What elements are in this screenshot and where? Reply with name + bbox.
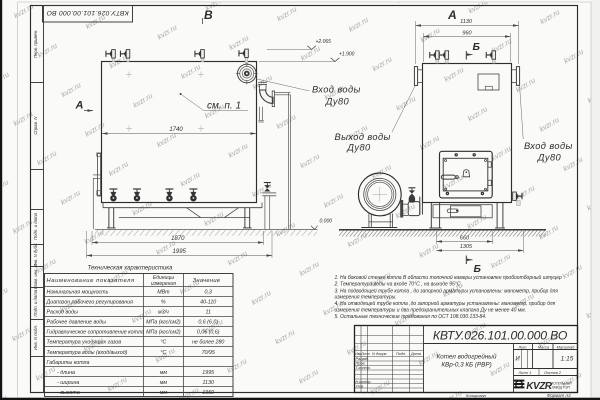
svg-text:Масштаб: Масштаб bbox=[557, 345, 576, 349]
svg-text:3. На подводящей трубе котла: 3. На подводящей трубе котла , до запорн… bbox=[335, 287, 559, 294]
svg-text:не более 280: не более 280 bbox=[192, 340, 224, 346]
svg-text:Формат А3: Формат А3 bbox=[547, 393, 571, 398]
svg-text:1130: 1130 bbox=[203, 380, 214, 386]
svg-text:0.000: 0.000 bbox=[320, 218, 333, 224]
svg-text:Перв. примен.: Перв. примен. bbox=[33, 30, 38, 59]
svg-text:0,06 (0,6): 0,06 (0,6) bbox=[197, 330, 220, 336]
svg-text:Расход воды: Расход воды bbox=[47, 310, 78, 316]
svg-text:- длина: - длина bbox=[57, 370, 75, 376]
svg-text:ЗАВОД РЭП: ЗАВОД РЭП bbox=[552, 385, 571, 389]
svg-text:40-110: 40-110 bbox=[200, 300, 216, 306]
svg-text:МПа (кгс/см2): МПа (кгс/см2) bbox=[146, 320, 181, 326]
svg-text:В: В bbox=[204, 8, 213, 22]
svg-text:1995: 1995 bbox=[202, 370, 214, 376]
svg-text:измерения температуры и два пр: измерения температуры и два предохраните… bbox=[335, 307, 527, 313]
svg-text:А: А bbox=[75, 100, 84, 112]
svg-text:Номинальная мощность: Номинальная мощность bbox=[47, 290, 109, 296]
svg-text:1870: 1870 bbox=[171, 236, 185, 242]
svg-text:+2.065: +2.065 bbox=[316, 39, 332, 45]
svg-text:4. На отводящей трубе котла ,: 4. На отводящей трубе котла ,до запорной… bbox=[335, 300, 556, 307]
svg-text:1. На боковой стенке котла В: 1. На боковой стенке котла В области топ… bbox=[335, 274, 563, 281]
svg-text:КВТУ.026.101.00.000 ВО: КВТУ.026.101.00.000 ВО bbox=[46, 9, 129, 16]
svg-text:мм: мм bbox=[160, 370, 168, 376]
svg-text:Ду80: Ду80 bbox=[325, 97, 350, 107]
svg-text:660: 660 bbox=[460, 235, 470, 241]
svg-text:Рабочее давление воды: Рабочее давление воды bbox=[47, 320, 106, 326]
svg-text:1130: 1130 bbox=[460, 19, 473, 25]
svg-text:А: А bbox=[447, 8, 457, 22]
svg-text:Котел водогрейный: Котел водогрейный bbox=[437, 353, 497, 361]
svg-text:Габариты котла: Габариты котла bbox=[47, 360, 90, 366]
svg-text:- ширина: - ширина bbox=[57, 380, 79, 386]
svg-text:Подп. и дата: Подп. и дата bbox=[33, 289, 38, 317]
svg-text:Копировал: Копировал bbox=[466, 393, 487, 398]
svg-text:И: И bbox=[515, 356, 520, 362]
svg-text:измерения температуры.: измерения температуры. bbox=[335, 294, 397, 300]
svg-text:Масса: Масса bbox=[538, 345, 549, 349]
svg-text:Листов 2: Листов 2 bbox=[543, 371, 562, 375]
svg-text:Температура воды (вход/выход): Температура воды (вход/выход) bbox=[47, 350, 128, 356]
svg-text:+1.900: +1.900 bbox=[339, 52, 355, 58]
svg-text:мм: мм bbox=[160, 380, 168, 386]
svg-text:Н.контр.: Н.контр. bbox=[356, 380, 372, 384]
svg-text:Значение: Значение bbox=[193, 278, 221, 284]
svg-text:°С: °С bbox=[160, 340, 166, 346]
svg-text:Справ. N: Справ. N bbox=[33, 116, 38, 135]
svg-text:Гидравлическое сопротивление к: Гидравлическое сопротивление котла bbox=[47, 330, 144, 336]
svg-text:Лист 1: Лист 1 bbox=[518, 371, 532, 375]
svg-text:Вход воды: Вход воды bbox=[312, 85, 361, 95]
svg-text:Температура уходящих газов: Температура уходящих газов bbox=[47, 340, 122, 346]
svg-text:Разраб.: Разраб. bbox=[356, 357, 370, 361]
svg-text:N докум.: N докум. bbox=[372, 352, 387, 356]
svg-text:Наименование показателя: Наименование показателя bbox=[47, 278, 135, 284]
svg-text:Лит.: Лит. bbox=[518, 345, 528, 349]
svg-text:Инв. N подл.: Инв. N подл. bbox=[33, 325, 38, 350]
svg-text:Ду80: Ду80 bbox=[346, 143, 371, 153]
svg-text:Взам. инв. N: Взам. инв. N bbox=[33, 263, 38, 289]
svg-text:МПа (кгс/см2): МПа (кгс/см2) bbox=[146, 330, 181, 336]
svg-text:Б: Б bbox=[473, 41, 481, 53]
svg-text:Ду80: Ду80 bbox=[537, 153, 562, 163]
svg-text:мм: мм bbox=[160, 390, 168, 396]
svg-text:Пров.: Пров. bbox=[356, 362, 366, 366]
svg-text:Утв.: Утв. bbox=[356, 385, 365, 389]
svg-text:1305: 1305 bbox=[460, 244, 473, 250]
svg-text:Дата: Дата bbox=[410, 352, 421, 356]
svg-text:Подп.: Подп. bbox=[396, 352, 406, 356]
svg-text:%: % bbox=[161, 300, 166, 306]
svg-text:измерения: измерения bbox=[151, 281, 176, 287]
svg-text:5. Остальные технические треб: 5. Остальные технические требования по О… bbox=[335, 314, 487, 320]
svg-text:Вход воды: Вход воды bbox=[524, 141, 573, 151]
svg-text:Выход воды: Выход воды bbox=[335, 132, 391, 142]
svg-text:70/95: 70/95 bbox=[202, 350, 215, 356]
svg-text:2. Температура воды на входе: 2. Температура воды на входе 70°С , на в… bbox=[334, 282, 464, 288]
svg-text:Б: Б bbox=[474, 263, 482, 275]
svg-text:1:15: 1:15 bbox=[561, 356, 574, 363]
svg-text:1950: 1950 bbox=[202, 390, 214, 396]
svg-text:Инв. N дубл.: Инв. N дубл. bbox=[33, 243, 38, 268]
svg-text:Подп. и дата: Подп. и дата bbox=[33, 212, 38, 240]
svg-text:KVZR: KVZR bbox=[526, 381, 553, 392]
svg-text:1995: 1995 bbox=[173, 249, 187, 255]
svg-text:960: 960 bbox=[462, 30, 472, 36]
svg-text:Техническая характеристика: Техническая характеристика bbox=[88, 266, 174, 272]
svg-text:Лист: Лист bbox=[360, 352, 370, 356]
svg-text:МВт: МВт bbox=[157, 290, 170, 296]
svg-text:Т.контр.: Т.контр. bbox=[356, 366, 371, 370]
svg-text:- высота: - высота bbox=[57, 390, 80, 396]
svg-text:°С: °С bbox=[160, 350, 166, 356]
svg-text:КВр-0,3 КБ (РВР): КВр-0,3 КБ (РВР) bbox=[441, 362, 491, 369]
svg-text:1740: 1740 bbox=[169, 127, 183, 133]
svg-text:КВТУ.026.101.00.000 ВО: КВТУ.026.101.00.000 ВО bbox=[433, 328, 568, 342]
svg-text:Диапазон рабочего регулировани: Диапазон рабочего регулирования bbox=[46, 300, 134, 306]
svg-text:см. п. 1: см. п. 1 bbox=[207, 101, 241, 112]
svg-text:0,6 (6,0): 0,6 (6,0) bbox=[198, 320, 218, 326]
svg-text:м3/ч: м3/ч bbox=[158, 310, 169, 316]
svg-text:0,3: 0,3 bbox=[205, 290, 212, 296]
svg-text:11: 11 bbox=[205, 310, 211, 316]
